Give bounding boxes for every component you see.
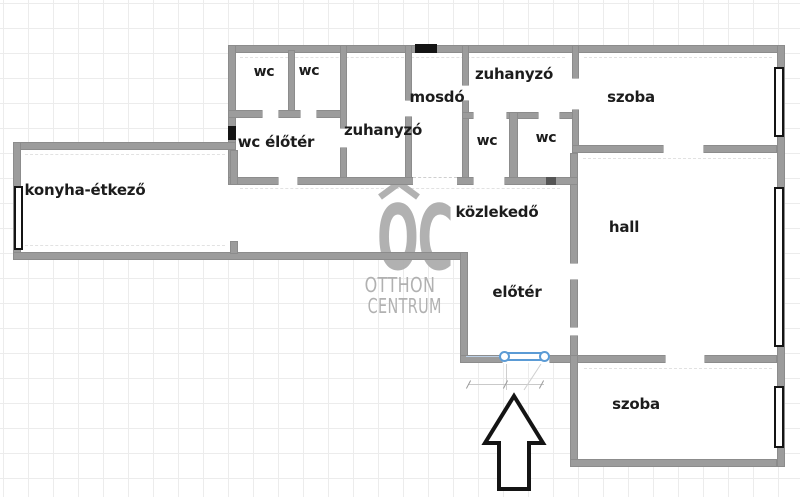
floor-plan: OC OTTHON CENTRUM <box>0 0 800 497</box>
entrance-arrow-icon <box>0 0 800 497</box>
